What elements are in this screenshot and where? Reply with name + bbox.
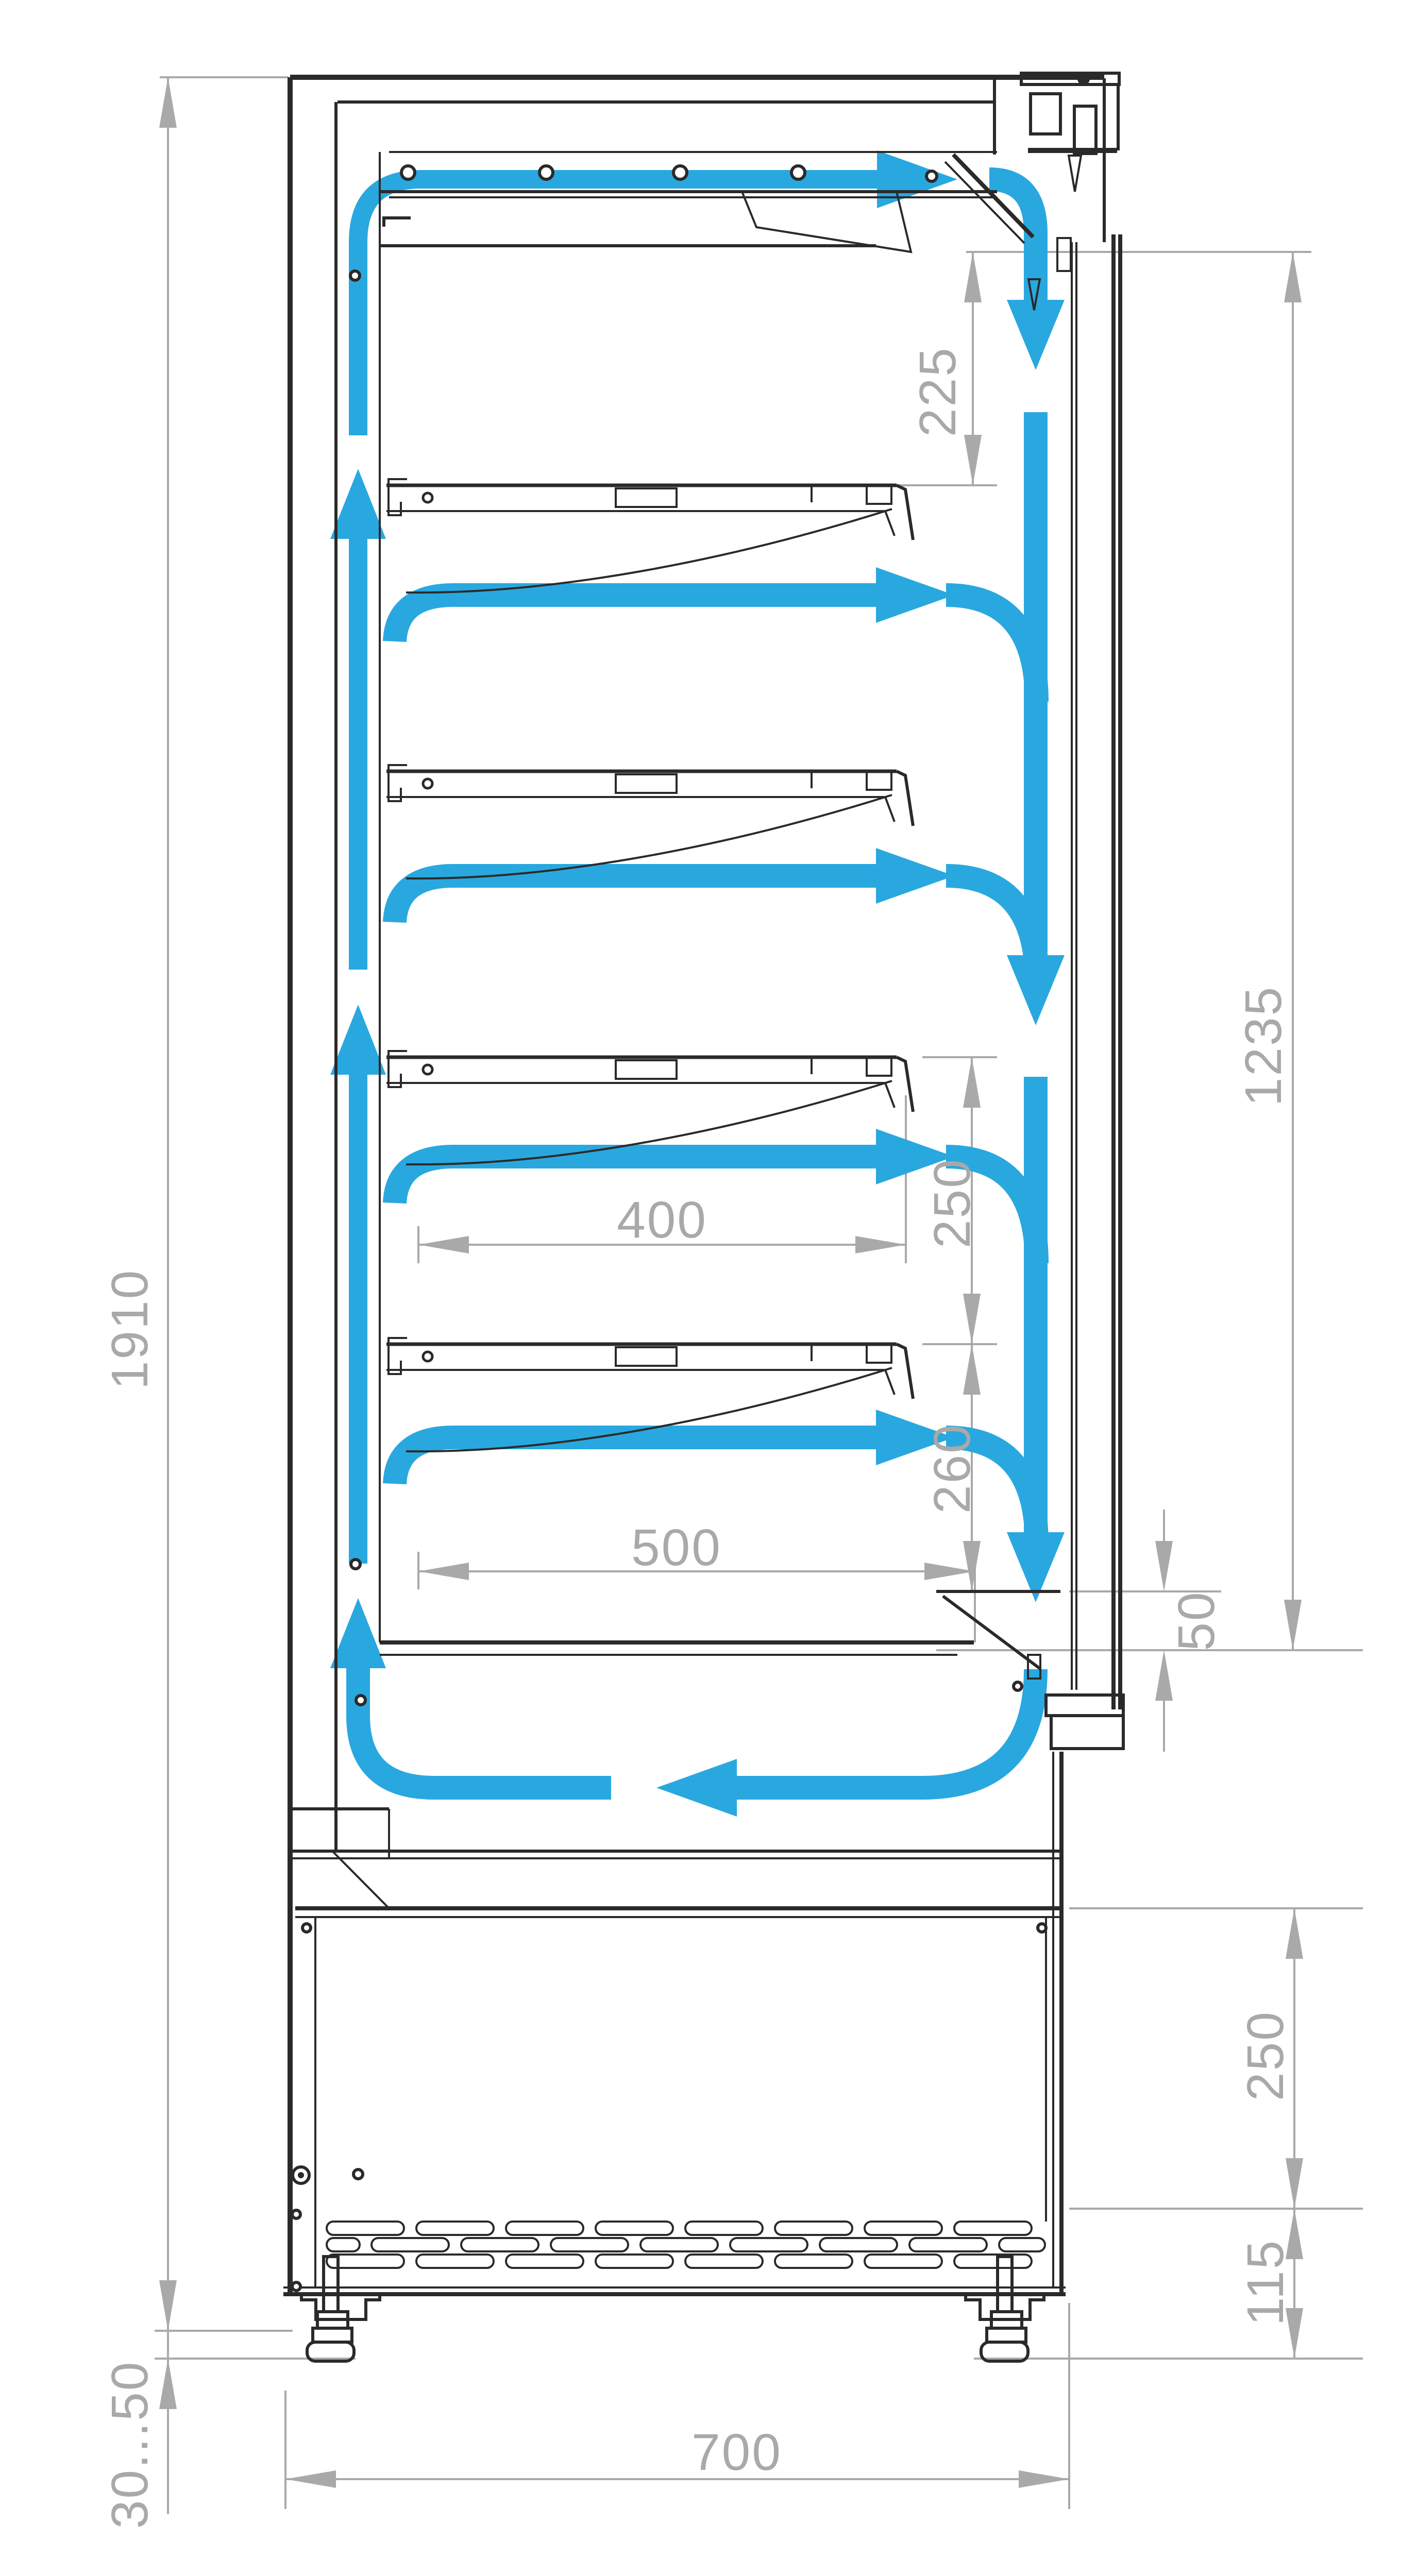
dim-base-height xyxy=(1069,1908,1363,2209)
glass-door xyxy=(1072,234,1120,1709)
duct-rivets xyxy=(350,166,805,1705)
adjustable-feet xyxy=(301,2257,1044,2361)
label-foot-height: 30...50 xyxy=(101,2361,159,2529)
label-deck-depth: 500 xyxy=(631,1519,722,1577)
airflow-top-discharge xyxy=(989,179,1065,370)
base-unit xyxy=(283,1752,1066,2294)
cabinet-casing xyxy=(290,77,1104,2294)
foot-right xyxy=(981,2257,1028,2361)
dim-foot-height xyxy=(155,2359,356,2409)
label-shelf-spacing: 250 xyxy=(923,1158,981,1248)
bottom-deck xyxy=(380,1591,1060,1690)
foot-left xyxy=(307,2257,354,2361)
diagram-page: 1910 30...50 700 225 1235 250 400 260 50… xyxy=(0,0,1417,2576)
airflow-return xyxy=(656,1669,1036,1817)
return-grille xyxy=(943,1596,1041,1669)
label-plinth-height: 115 xyxy=(1237,2239,1294,2326)
shelves xyxy=(386,479,913,1451)
cabinet-section-diagram: 1910 30...50 700 225 1235 250 400 260 50… xyxy=(0,0,1417,2576)
label-interior-height: 1235 xyxy=(1235,986,1292,1106)
dim-overall-height xyxy=(155,77,293,2514)
label-discharge-gap: 50 xyxy=(1168,1590,1225,1651)
shelf-2 xyxy=(386,765,913,878)
label-depth: 700 xyxy=(691,2424,782,2481)
canopy xyxy=(380,152,1033,252)
shelf-jet-2 xyxy=(395,848,1037,982)
airflow-curtain xyxy=(1007,412,1065,1602)
label-bottom-shelf-gap: 260 xyxy=(923,1423,981,1514)
label-top-gap: 225 xyxy=(909,346,967,437)
shelf-1 xyxy=(386,479,913,592)
dim-depth xyxy=(285,2303,1069,2509)
shelf-jet-1 xyxy=(395,567,1037,702)
label-shelf-depth: 400 xyxy=(617,1191,707,1249)
louvre-row-middle xyxy=(327,2238,1045,2251)
hinge-pin xyxy=(1077,73,1090,85)
dim-plinth-height xyxy=(974,2209,1363,2359)
ventilation-grille xyxy=(327,2222,1045,2268)
label-base-height: 250 xyxy=(1237,2010,1294,2101)
label-overall-height: 1910 xyxy=(101,1269,159,1389)
